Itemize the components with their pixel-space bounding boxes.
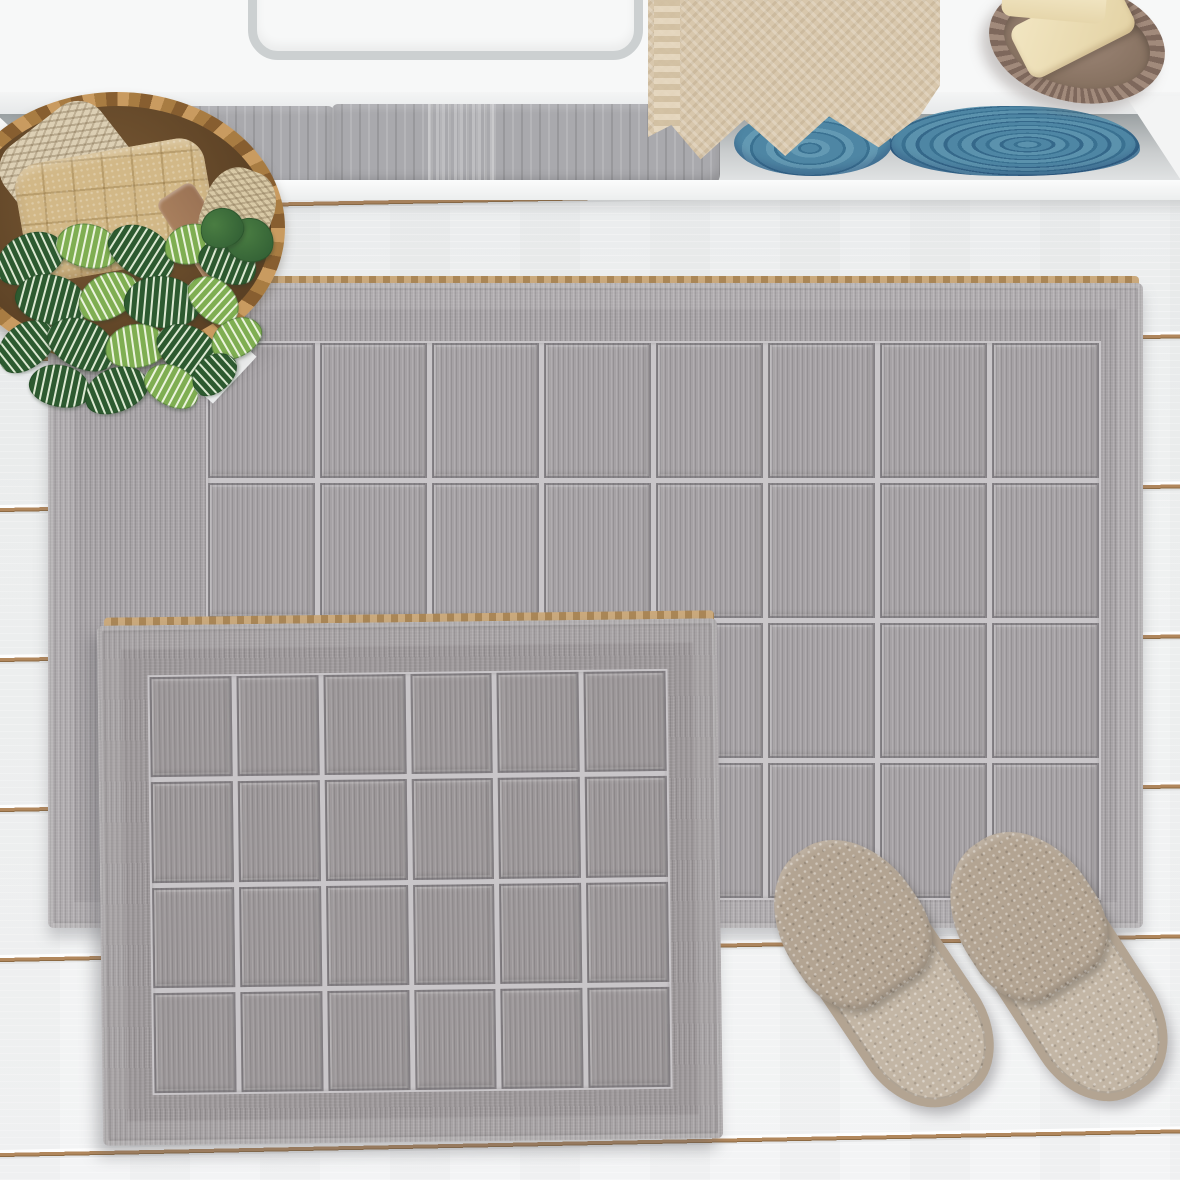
mat-square: [236, 675, 319, 776]
mat-square: [501, 988, 584, 1089]
mat-square: [544, 483, 651, 618]
mat-square: [411, 778, 494, 879]
mat-square: [320, 483, 427, 618]
bath-mat-small: [97, 618, 723, 1146]
mat-square: [587, 987, 670, 1088]
mat-square: [208, 483, 315, 618]
mat-square: [880, 483, 987, 618]
mat-square: [992, 623, 1099, 758]
sink-basin-outline: [248, 0, 643, 60]
mat-square: [544, 343, 651, 478]
mat-square: [498, 777, 581, 878]
mat-square: [880, 343, 987, 478]
mat-square: [323, 674, 406, 775]
mat-square: [151, 781, 234, 882]
mat-square: [656, 483, 763, 618]
towel-dobby-band: [428, 104, 494, 188]
mat-square: [413, 883, 496, 984]
mat-square: [584, 671, 667, 772]
wicker-basket: [0, 92, 285, 364]
mat-square: [586, 881, 669, 982]
mat-square: [432, 483, 539, 618]
mat-square: [324, 779, 407, 880]
mat-square: [656, 343, 763, 478]
mat-square: [880, 623, 987, 758]
mat-square: [585, 776, 668, 877]
mat-square: [240, 991, 323, 1092]
mat-square: [499, 882, 582, 983]
mat-square: [320, 343, 427, 478]
mat-square: [327, 990, 410, 1091]
mat-square: [768, 343, 875, 478]
mat-square: [414, 989, 497, 1090]
mat-square: [992, 343, 1099, 478]
mat-square: [410, 673, 493, 774]
mat-square: [497, 672, 580, 773]
mat-square: [152, 887, 235, 988]
mat-square: [238, 780, 321, 881]
mat-square: [768, 483, 875, 618]
mat-square: [149, 676, 232, 777]
bathroom-product-photo: [0, 0, 1180, 1180]
mat-square: [992, 483, 1099, 618]
mat-square: [239, 886, 322, 987]
mat-square: [153, 992, 236, 1093]
mat-square: [432, 343, 539, 478]
mat-square: [768, 623, 875, 758]
mat-square: [326, 885, 409, 986]
small-mat-checkered-field: [149, 671, 670, 1093]
